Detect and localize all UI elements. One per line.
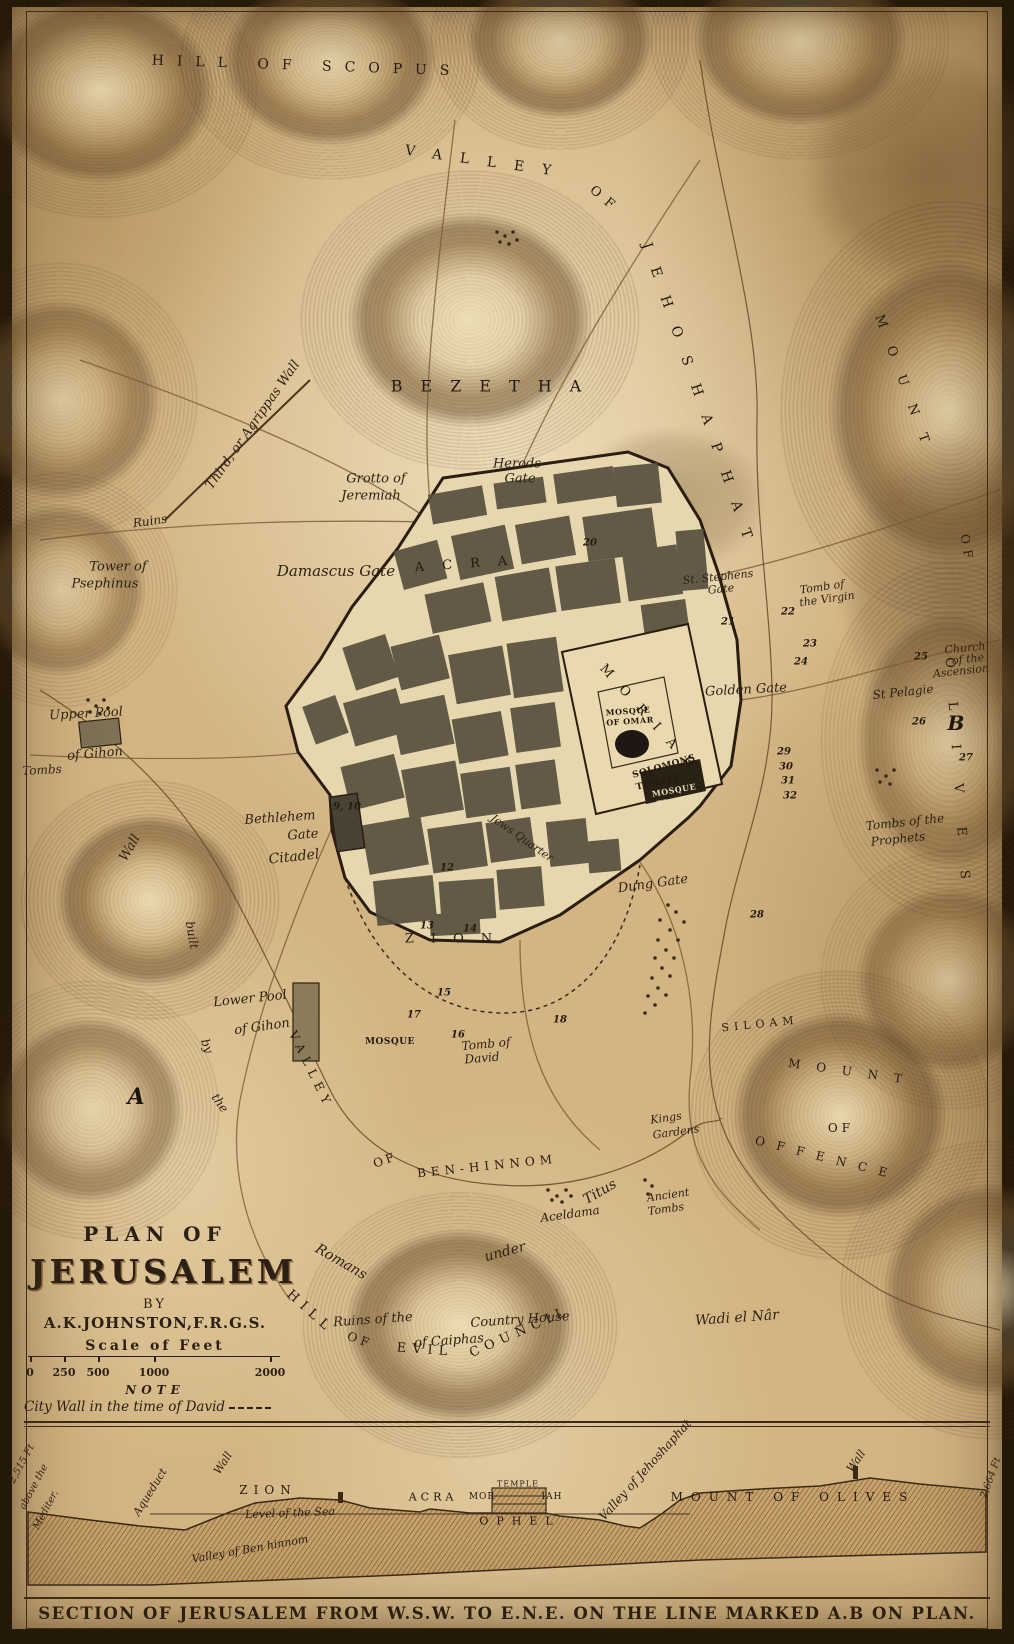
note-text: City Wall in the time of David [24, 1399, 271, 1415]
title-line-plan-of: PLAN OF [30, 1222, 280, 1246]
scale-tick [98, 1356, 100, 1362]
map-title: JERUSALEM [30, 1252, 280, 1291]
note-heading: NOTE [30, 1383, 280, 1397]
title-block: PLAN OF JERUSALEM BY A.K.JOHNSTON,F.R.G.… [30, 1222, 280, 1354]
section-label: Level of the Sea [245, 1505, 335, 1521]
scale-tick-label: 500 [87, 1366, 110, 1379]
section-label: ZION [239, 1483, 296, 1497]
section-label: Valley of Jehoshaphat [596, 1417, 694, 1524]
section-label: MOR [469, 1492, 495, 1502]
scale-tick [270, 1356, 272, 1362]
scale-tick-label: 2000 [255, 1366, 286, 1379]
section-label: 2,664 Ft [979, 1456, 1004, 1500]
scale-tick [154, 1356, 156, 1362]
scale-tick-label: 250 [53, 1366, 76, 1379]
scale-tick-label: 1000 [139, 1366, 170, 1379]
section-caption: SECTION OF JERUSALEM FROM W.S.W. TO E.N.… [38, 1604, 976, 1623]
scale-heading: Scale of Feet [30, 1338, 280, 1354]
antique-map-page: { "title_block": { "line1": "PLAN OF", "… [0, 0, 1014, 1644]
section-label: MOUNT OF OLIVES [671, 1490, 916, 1504]
section-caption-band: SECTION OF JERUSALEM FROM W.S.W. TO E.N.… [24, 1598, 990, 1628]
section-label: Wall [844, 1447, 868, 1474]
section-label: ACRA [409, 1491, 458, 1504]
dashed-wall-symbol [229, 1407, 271, 1409]
section-label: Aqueduct [130, 1466, 169, 1518]
scale-tick [64, 1356, 66, 1362]
scale-tick-label: 0 [26, 1366, 34, 1379]
scale-tick [30, 1356, 32, 1362]
section-label: IAH [542, 1492, 563, 1502]
section-label: OPHEL [479, 1515, 560, 1528]
scale-bar [28, 1356, 280, 1365]
note-text-label: City Wall in the time of David [24, 1399, 225, 1415]
title-by: BY [30, 1297, 280, 1312]
author-line: A.K.JOHNSTON,F.R.G.S. [30, 1314, 280, 1332]
section-labels-layer: 2,515 Ftabove theMediter.AqueductWallZIO… [0, 0, 1014, 1644]
section-label: TEMPLE [497, 1480, 539, 1489]
section-label: Wall [211, 1449, 235, 1476]
section-label: Valley of Ben hinnom [191, 1532, 309, 1565]
